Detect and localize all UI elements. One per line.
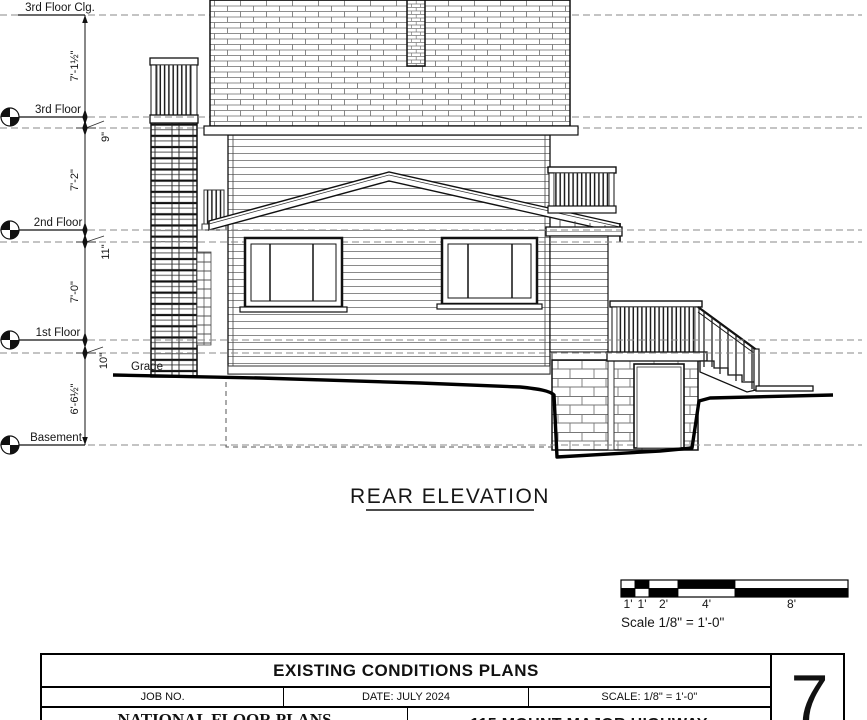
- level-label-2nd-floor: 2nd Floor: [34, 217, 83, 229]
- roof-group: [204, 0, 578, 135]
- rear-elevation-drawing: 3rd Floor Clg. 3rd Floor 2nd Floor 1st F…: [0, 0, 867, 650]
- stair-tower-treads: [151, 122, 197, 377]
- level-label-3rd-floor: 3rd Floor: [35, 104, 81, 116]
- foundation-post: [608, 352, 614, 450]
- drawing-title-group: REAR ELEVATION: [350, 485, 550, 510]
- right-bumpout-wall: [550, 236, 608, 352]
- job-no-cell: JOB NO.: [42, 688, 284, 706]
- upper-deck-top-rail: [548, 167, 616, 173]
- scale-tick-label: 8': [787, 597, 796, 611]
- lower-deck-top-rail: [610, 301, 702, 307]
- roof-fascia: [204, 126, 578, 135]
- window-inner-frame: [448, 244, 531, 298]
- drawing-title: REAR ELEVATION: [350, 485, 550, 508]
- date-cell: DATE: JULY 2024: [284, 688, 528, 706]
- rail-post: [151, 65, 156, 122]
- scale-tick-label: 2': [659, 597, 668, 611]
- window-sill: [437, 304, 542, 309]
- window-sill: [240, 307, 347, 312]
- dim-leaders: [86, 121, 104, 353]
- basement-door: [634, 364, 684, 448]
- rail-post: [612, 307, 617, 352]
- level-marker-2nd-floor: [1, 221, 19, 239]
- grade-label: Grade: [131, 361, 163, 373]
- level-marker-basement: [1, 436, 19, 454]
- upper-deck-bottom-rail: [548, 206, 616, 213]
- main-roof: [210, 0, 570, 126]
- dim-label-joist-1st: 10": [98, 353, 110, 369]
- lower-deck: [607, 301, 707, 361]
- title-block-main: EXISTING CONDITIONS PLANS JOB NO. DATE: …: [42, 655, 772, 720]
- lower-deck-balusters: [617, 307, 695, 352]
- title-block: EXISTING CONDITIONS PLANS JOB NO. DATE: …: [40, 653, 845, 720]
- dim-label-clg-to-3rd: 7'-1½": [69, 50, 81, 81]
- dimension-system: 3rd Floor Clg. 3rd Floor 2nd Floor 1st F…: [1, 2, 163, 454]
- scale-tick-label: 1': [638, 597, 647, 611]
- dim-label-1st-to-basement: 6'-6½": [69, 383, 81, 414]
- rail-post: [191, 65, 197, 122]
- basement-outline-dashed: [226, 382, 552, 447]
- level-markers: [1, 108, 19, 454]
- scale-caption: Scale 1/8" = 1'-0": [621, 615, 725, 630]
- project-address: 115 MOUNT MAJOR HIGHWAY: [408, 708, 770, 720]
- dim-label-3rd-to-2nd: 7'-2": [69, 169, 81, 191]
- dim-label-joist-2nd: 11": [100, 244, 112, 259]
- title-block-bottom-row: NATIONAL FLOOR PLANS 115 MOUNT MAJOR HIG…: [42, 708, 770, 720]
- door-leaf: [637, 367, 681, 448]
- exterior-stairs: [698, 307, 813, 392]
- level-label-1st-floor: 1st Floor: [36, 327, 81, 339]
- scale-cell: SCALE: 1/8" = 1'-0": [529, 688, 770, 706]
- drawing-sheet: 3rd Floor Clg. 3rd Floor 2nd Floor 1st F…: [0, 0, 867, 720]
- sheet-number: 7: [774, 655, 845, 720]
- level-marker-3rd-floor: [1, 108, 19, 126]
- scale-tick-label: 4': [702, 597, 711, 611]
- dim-label-2nd-to-1st: 7'-0": [69, 281, 81, 303]
- stair-tower-railing: [150, 58, 198, 123]
- level-label-3rd-floor-clg: 3rd Floor Clg.: [25, 2, 95, 14]
- sheet-title: EXISTING CONDITIONS PLANS: [42, 655, 770, 686]
- chimney: [407, 0, 425, 66]
- level-marker-1st-floor: [1, 331, 19, 349]
- window-left: [240, 238, 347, 312]
- stair-landing-pad: [756, 386, 813, 391]
- title-block-info-row: JOB NO. DATE: JULY 2024 SCALE: 1/8" = 1'…: [42, 686, 770, 708]
- level-label-basement: Basement: [30, 432, 83, 444]
- wall-skirt-band: [228, 366, 550, 374]
- scale-bar-segments: [621, 580, 848, 597]
- window-right: [437, 238, 542, 309]
- dim-label-joist-3rd: 9": [100, 132, 112, 142]
- upper-deck-balusters: [554, 173, 609, 206]
- stair-end-post: [754, 349, 759, 390]
- rail-bottom-band: [150, 115, 198, 123]
- scale-bar: 1' 1' 2' 4' 8' Scale 1/8" = 1'-0": [621, 580, 848, 630]
- top-rail: [150, 58, 198, 65]
- scale-tick-label: 1': [624, 597, 633, 611]
- window-inner-frame: [251, 244, 336, 301]
- balusters: [157, 65, 191, 115]
- company-name: NATIONAL FLOOR PLANS: [42, 708, 408, 720]
